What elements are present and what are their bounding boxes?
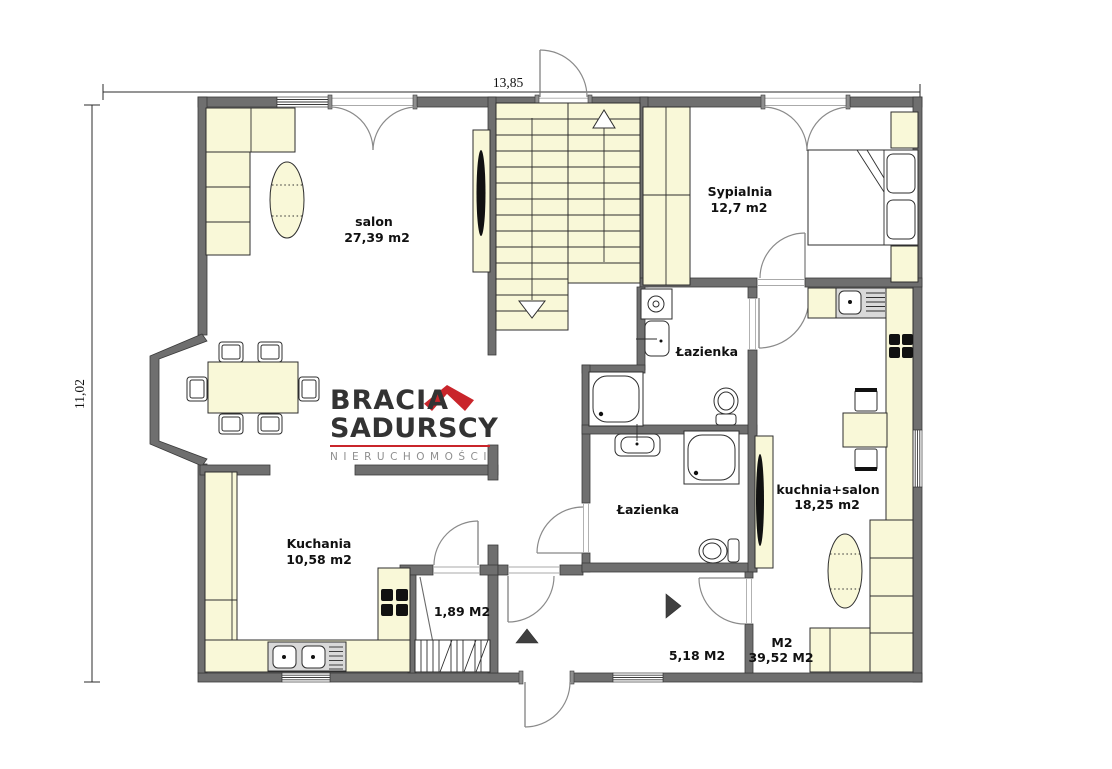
entrance-arrow-icon (516, 629, 538, 643)
label-lazienka-upper: Łazienka (675, 344, 738, 359)
corner-sofa (206, 108, 295, 152)
pillow (887, 200, 915, 239)
chair (855, 449, 877, 470)
tv-icon (756, 454, 764, 546)
chair (855, 390, 877, 411)
french-door-bedroom (763, 107, 850, 151)
small-table (843, 413, 887, 447)
nightstand (891, 246, 918, 282)
wardrobe (643, 107, 690, 285)
dining-table (208, 362, 298, 413)
kitchen-furniture (205, 472, 410, 672)
dimension-top-label: 13,85 (493, 75, 524, 90)
logo-brand-line1: BRACIA (330, 387, 498, 414)
kitchen-salon-furniture (755, 288, 913, 672)
label-hol-area: 5,18 M2 (669, 648, 725, 663)
label-lazienka-lower: Łazienka (616, 502, 679, 517)
m2-unit-door (699, 578, 745, 624)
unit-entry-arrow-icon (666, 594, 681, 618)
kitchen-counter (886, 288, 913, 530)
bathroom-upper-door (759, 298, 809, 348)
floor-plan-drawing: 13,85 11,02 (0, 0, 1112, 769)
label-m2: M2 (771, 635, 792, 650)
floor-plan-image: 13,85 11,02 (0, 0, 1112, 769)
logo-brand-line2: SADURSCY (330, 415, 498, 442)
label-salon-area: 27,39 m2 (344, 230, 410, 245)
corridor-door (508, 576, 554, 622)
agency-logo: BRACIA SADURSCY NIERUCHOMOŚCI (330, 387, 498, 463)
label-sypialnia: Sypialnia (708, 184, 773, 199)
dimension-left-label: 11,02 (72, 379, 87, 409)
logo-underline (330, 445, 490, 447)
bathroom-lower-fixtures (615, 424, 739, 563)
label-kuchnia-salon-area: 18,25 m2 (794, 497, 860, 512)
hall-arrows (516, 594, 681, 643)
toilet-icon (699, 539, 739, 563)
label-kuchnia-salon: kuchnia+salon (776, 482, 879, 497)
storage-hatch (415, 640, 490, 672)
bedroom-door (760, 233, 805, 278)
exterior-door-top (540, 50, 587, 97)
tv-icon (477, 150, 486, 236)
label-m2-area: 39,52 M2 (748, 650, 813, 665)
french-door-salon (330, 107, 417, 150)
label-sypialnia-area: 12,7 m2 (711, 200, 768, 215)
bathroom-lower-door (537, 507, 583, 553)
coffee-table (828, 534, 862, 608)
entrance-door (525, 682, 570, 727)
coffee-table (270, 162, 304, 238)
label-kuchnia-area: 10,58 m2 (286, 552, 352, 567)
logo-subtitle: NIERUCHOMOŚCI (330, 452, 498, 463)
pillow (887, 154, 915, 193)
staircase (496, 103, 640, 330)
label-schowek-area: 1,89 M2 (434, 604, 490, 619)
label-kuchnia: Kuchania (287, 536, 352, 551)
bedroom-furniture (643, 107, 918, 285)
sink-icon (645, 321, 669, 356)
nightstand (891, 112, 918, 148)
label-salon: salon (355, 214, 393, 229)
toilet-icon (714, 388, 738, 425)
